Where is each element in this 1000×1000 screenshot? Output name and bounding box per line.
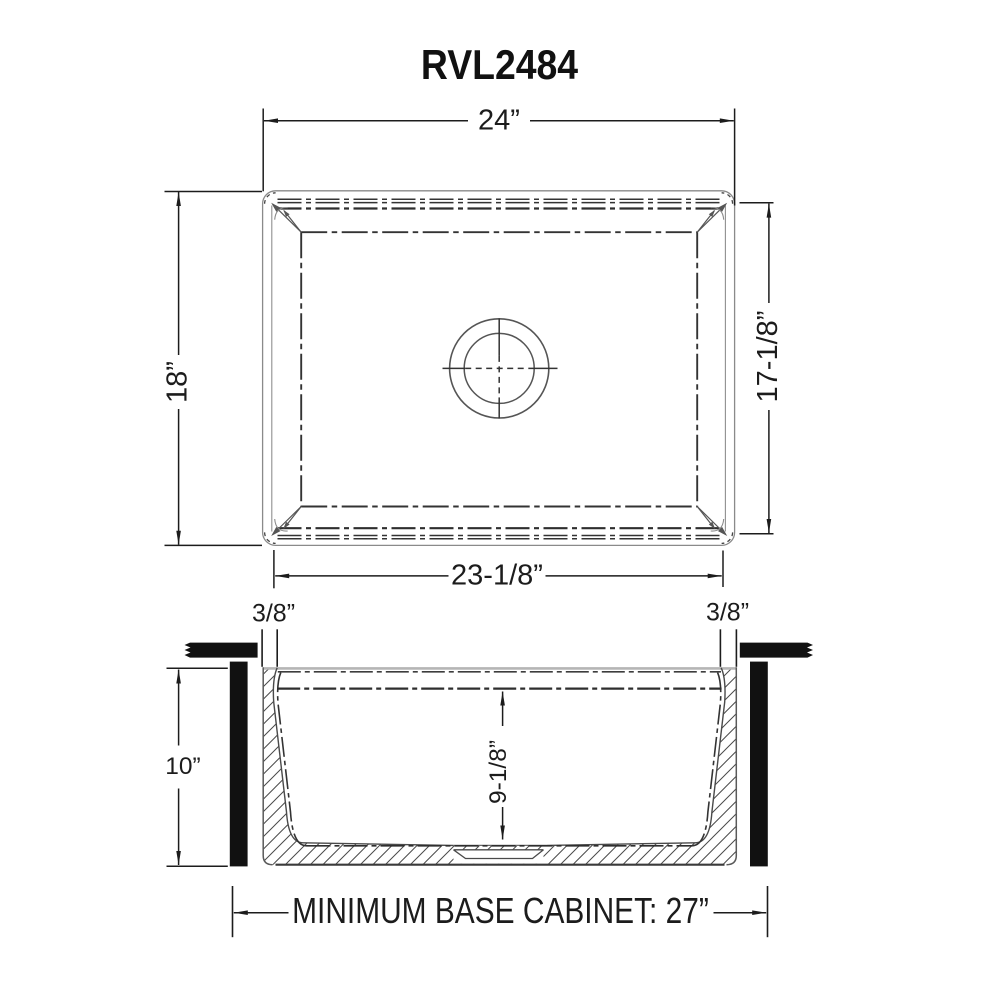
svg-text:24”: 24” xyxy=(478,105,520,137)
svg-text:3/8”: 3/8” xyxy=(252,600,295,628)
svg-text:RVL2484: RVL2484 xyxy=(421,42,578,88)
svg-text:17-1/8”: 17-1/8” xyxy=(752,311,784,403)
svg-text:23-1/8”: 23-1/8” xyxy=(451,560,543,592)
svg-text:18”: 18” xyxy=(162,361,194,403)
svg-text:10”: 10” xyxy=(165,753,200,780)
svg-text:3/8”: 3/8” xyxy=(706,599,749,627)
svg-text:MINIMUM BASE CABINET: 27”: MINIMUM BASE CABINET: 27” xyxy=(292,891,709,931)
svg-text:9-1/8”: 9-1/8” xyxy=(485,740,512,804)
